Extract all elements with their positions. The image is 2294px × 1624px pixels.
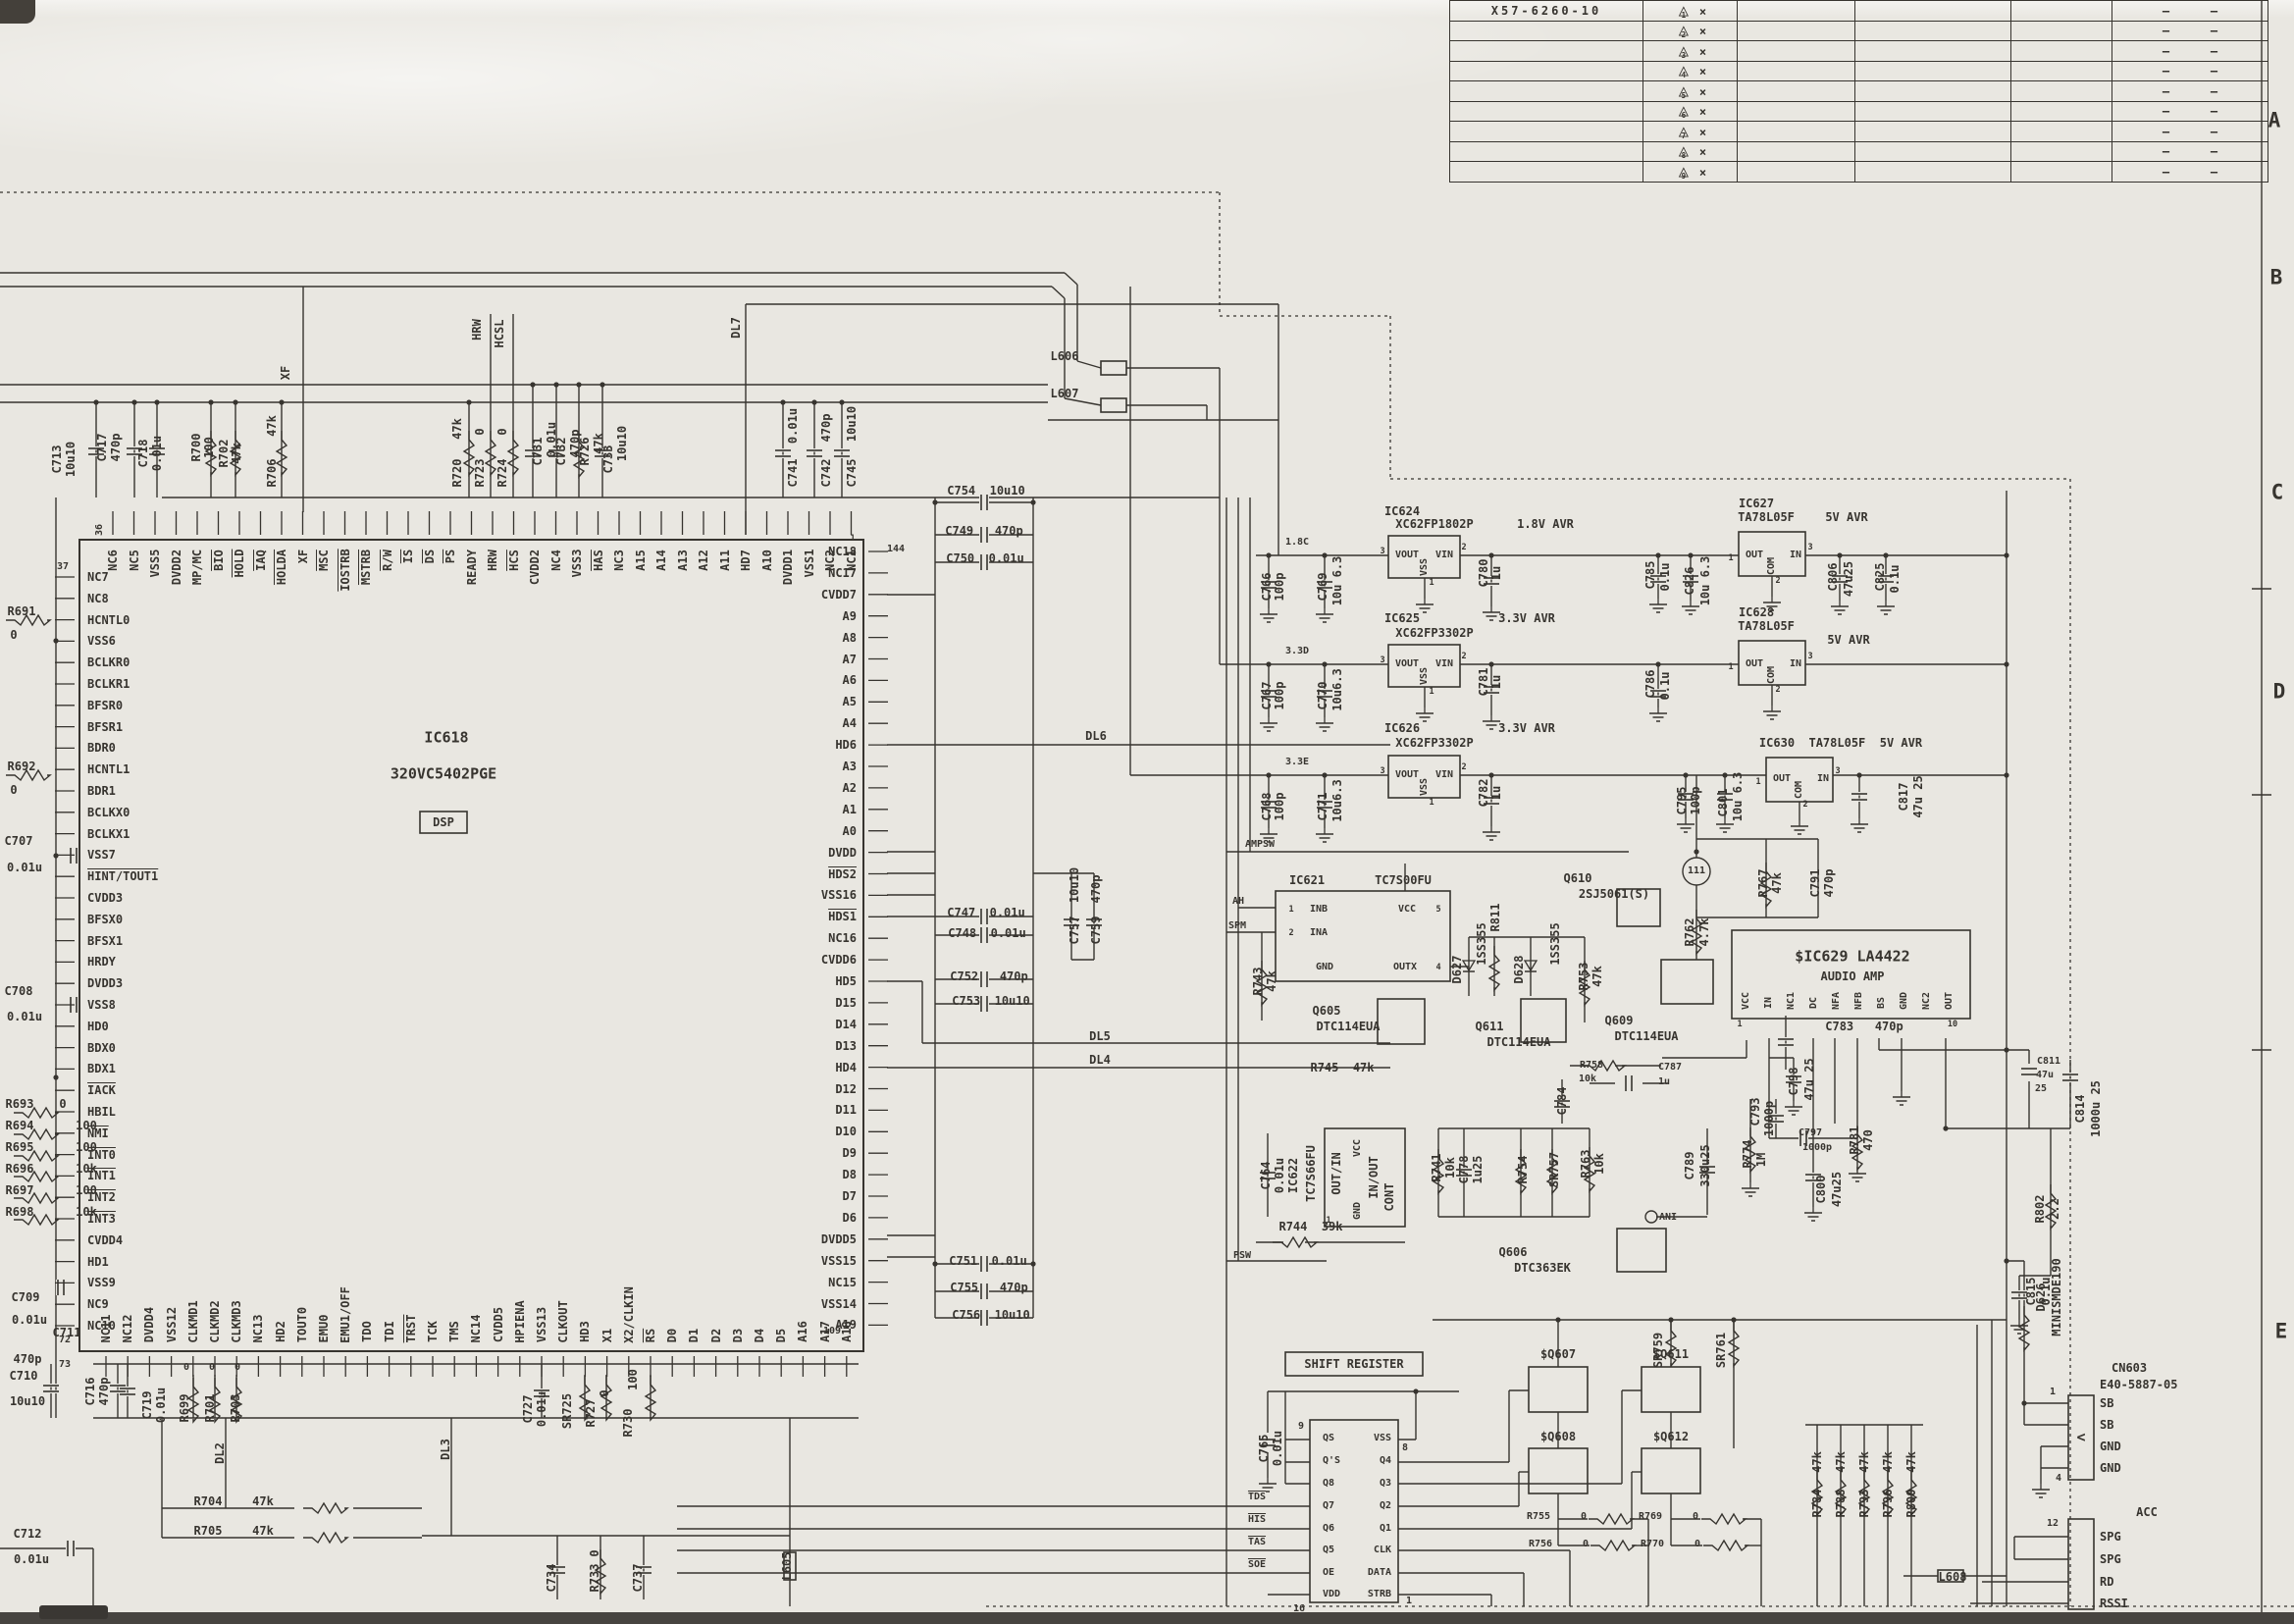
component-label: SR725 — [561, 1393, 573, 1429]
revision-empty-cell — [1450, 162, 1643, 183]
pin-label: BDR1 — [87, 785, 116, 797]
component-label: 0.01u — [1272, 1431, 1283, 1466]
pin-label: CVDD2 — [529, 550, 541, 585]
pin-label: EMU1/OFF — [339, 1286, 351, 1343]
component-label: PSW — [1233, 1251, 1251, 1261]
pin-label: XF — [297, 550, 309, 563]
component-label: 2 — [1288, 929, 1293, 938]
component-label: 47k — [1591, 966, 1603, 987]
component-label: 0.01u — [536, 1391, 547, 1427]
pin-label: A13 — [677, 550, 689, 571]
component-label: COM — [1767, 557, 1777, 575]
component-label: VOUT — [1395, 770, 1419, 780]
revision-empty-cell — [1855, 122, 2011, 142]
pin-label: A3 — [843, 760, 857, 772]
component-label: 330u25 — [1699, 1144, 1711, 1186]
component-label: IN — [1764, 997, 1774, 1009]
component-label: $Q607 — [1540, 1348, 1576, 1360]
pin-label: TDO — [361, 1322, 373, 1343]
revision-mark-cell: △3× — [1643, 41, 1738, 62]
component-label: NC2 — [1922, 992, 1932, 1010]
component-label: 1.8V AVR — [1517, 518, 1574, 530]
pin-label: R/W — [382, 550, 393, 571]
component-label: C710 — [10, 1370, 38, 1382]
component-label: R723 — [474, 459, 486, 488]
pin-label: CVDD4 — [87, 1234, 123, 1246]
component-label: DTC114EUA — [1614, 1030, 1678, 1042]
component-label: VSS — [1420, 558, 1430, 576]
component-label: 0.01u — [155, 1388, 167, 1423]
pin-label: A17 — [819, 1322, 831, 1343]
revision-dash-cell: –– — [2112, 122, 2268, 142]
pin-label: A11 — [719, 550, 731, 571]
component-label: 1u — [1658, 1077, 1670, 1087]
component-label: 100p — [1690, 787, 1701, 815]
component-label: R755 — [1527, 1512, 1550, 1522]
component-label: C769 — [1317, 573, 1329, 602]
component-label: R700 — [190, 434, 202, 462]
x-mark: × — [1699, 65, 1706, 79]
component-label: IN/OUT — [1368, 1156, 1380, 1198]
pin-label: D6 — [843, 1212, 857, 1224]
component-label: C825 — [1874, 563, 1886, 592]
component-label: Q610 — [1564, 872, 1592, 884]
component-label: C782 — [1478, 779, 1489, 808]
pin-label: HCNTL0 — [87, 614, 130, 626]
component-label: 1 — [2050, 1388, 2056, 1397]
component-label: C749 470p — [945, 525, 1022, 537]
pin-label: D0 — [666, 1329, 678, 1342]
component-label: C757 — [1069, 917, 1080, 945]
component-label: 3 — [1807, 544, 1812, 552]
component-label: XC62FP3302P — [1395, 627, 1473, 639]
component-label: 73 — [59, 1360, 71, 1370]
component-label: TA78L05F — [1738, 620, 1795, 632]
component-label: 3 — [1835, 767, 1840, 776]
warning-triangle-icon: △9 — [1674, 163, 1694, 181]
grid-letter: C — [2271, 483, 2284, 503]
component-label: 1 — [1728, 554, 1733, 563]
pin-label: MSC — [318, 550, 330, 571]
pin-label: NMI — [87, 1127, 109, 1139]
component-label: 1u — [1490, 786, 1502, 800]
component-label: 47k — [1835, 1451, 1847, 1473]
component-label: 1SS355 — [1549, 922, 1561, 965]
pin-label: NC17 — [828, 567, 857, 579]
component-label: 0 — [1693, 1512, 1698, 1522]
component-label: C770 — [1317, 682, 1329, 710]
pin-label: BFSX0 — [87, 914, 123, 925]
grid-letter: D — [2273, 682, 2286, 703]
component-label: 47u — [2036, 1071, 2054, 1080]
component-label: C798 — [1788, 1068, 1799, 1096]
pin-label: NC7 — [87, 571, 109, 583]
component-label: 470p — [820, 414, 832, 443]
component-label: R770 — [1641, 1540, 1664, 1549]
component-label: GND — [1353, 1202, 1363, 1220]
component-label: Q7 — [1323, 1501, 1334, 1511]
component-label: C712 — [14, 1528, 42, 1540]
pin-label: D10 — [835, 1126, 857, 1137]
pin-label: A9 — [843, 610, 857, 622]
component-label: C718 — [137, 440, 149, 468]
component-label: 100 — [203, 437, 215, 458]
pin-label: A5 — [843, 696, 857, 707]
pin-label: NC5 — [129, 550, 140, 571]
pin-label: TDI — [384, 1322, 395, 1343]
component-label: R762 — [1684, 918, 1695, 947]
component-label: 0 — [183, 1363, 189, 1373]
component-label: IC622 — [1287, 1158, 1299, 1193]
pin-label: HCS — [508, 550, 520, 571]
pin-label: A19 — [835, 1319, 857, 1331]
pin-label: BFSX1 — [87, 935, 123, 947]
component-label: C716 — [84, 1378, 96, 1406]
component-label: C755 470p — [950, 1282, 1027, 1293]
component-label: 47k — [1771, 872, 1783, 894]
component-label: IC621 — [1289, 874, 1325, 886]
component-label: C709 — [12, 1291, 40, 1303]
revision-empty-cell — [1738, 101, 1855, 122]
revision-empty-cell — [1450, 101, 1643, 122]
pin-label: VSS7 — [87, 849, 116, 861]
revision-row: △4×–– — [1450, 61, 2268, 81]
component-label: 1 — [1737, 1021, 1742, 1029]
component-label: R756 — [1529, 1540, 1552, 1549]
component-label: R703 — [230, 1394, 241, 1423]
component-label: 3.3E — [1285, 758, 1309, 767]
pin-label: DVDD — [828, 847, 857, 859]
component-label: OUTX — [1393, 963, 1417, 972]
component-label: AMPSW — [1245, 840, 1275, 850]
component-label: C751 0.01u — [949, 1255, 1026, 1267]
component-label: 470 — [1862, 1129, 1874, 1151]
pin-label: D8 — [843, 1169, 857, 1180]
pin-label: HD0 — [87, 1021, 109, 1032]
component-label: 111 — [1688, 866, 1705, 876]
component-label: VSS — [1420, 667, 1430, 685]
pin-label: D11 — [835, 1104, 857, 1116]
component-label: Q6 — [1323, 1524, 1334, 1534]
component-label: XC62FP1802P — [1395, 518, 1473, 530]
component-label: 144 — [887, 545, 905, 554]
component-label: XF — [280, 366, 291, 380]
component-label: C764 — [1260, 1162, 1272, 1190]
component-label: 2 — [1775, 577, 1780, 586]
component-label: 47k — [252, 1495, 274, 1507]
revision-mark-cell: △6× — [1643, 101, 1738, 122]
component-label: R758 — [1580, 1061, 1603, 1071]
component-label: 0.1u — [1889, 565, 1901, 594]
component-label: $Q608 — [1540, 1431, 1576, 1442]
pin-label: INT0 — [87, 1149, 116, 1161]
pin-label: EMU0 — [318, 1314, 330, 1342]
component-label: 47k — [1858, 1451, 1870, 1473]
revision-mark-cell: △7× — [1643, 122, 1738, 142]
component-label: C756 10u10 — [952, 1309, 1029, 1321]
component-label: R720 — [451, 459, 463, 488]
revision-empty-cell — [1450, 141, 1643, 162]
component-label: C780 — [1478, 559, 1489, 588]
component-label: C748 0.01u — [948, 927, 1025, 939]
component-label: IC618 — [424, 731, 468, 746]
component-label: 0.1u — [1659, 563, 1671, 592]
component-label: 3 — [1380, 656, 1384, 665]
component-label: C781 — [1478, 668, 1489, 697]
component-label: 5V AVR — [1825, 511, 1867, 523]
revision-empty-cell — [2011, 61, 2112, 81]
pin-label: VSS12 — [166, 1307, 178, 1342]
component-label: R694 — [6, 1120, 34, 1131]
component-label: R769 — [1639, 1512, 1662, 1522]
component-label: MINISMDE190 — [2051, 1258, 2062, 1336]
component-label: VCC — [1398, 905, 1416, 915]
component-label: C734 — [546, 1564, 557, 1593]
revision-mark-cell: △5× — [1643, 81, 1738, 102]
component-label: DL6 — [1085, 730, 1107, 742]
component-label: R695 — [6, 1141, 34, 1153]
component-label: 1000p — [1763, 1101, 1775, 1136]
revision-row: △3×–– — [1450, 41, 2268, 62]
pin-label: VSS6 — [87, 635, 116, 647]
component-label: C785 — [1644, 561, 1656, 590]
component-label: $IC629 LA4422 — [1795, 950, 1909, 965]
pin-label: DVDD1 — [782, 550, 794, 585]
component-label: D626 — [2035, 1283, 2047, 1312]
pin-label: HOLDA — [276, 550, 287, 585]
component-label: 0 — [235, 1363, 240, 1373]
component-label: 2 — [1461, 653, 1466, 661]
component-label: C745 — [846, 459, 858, 488]
component-label: SR759 — [1652, 1333, 1664, 1368]
pin-label: A16 — [797, 1322, 808, 1343]
pin-label: D1 — [688, 1329, 700, 1342]
component-label: XC62FP3302P — [1395, 737, 1473, 749]
component-label: 10k — [1579, 1074, 1596, 1084]
component-label: BS — [1877, 997, 1887, 1009]
pin-label: D13 — [835, 1040, 857, 1052]
component-label: 3.3V AVR — [1498, 722, 1555, 734]
component-label: IC624 — [1384, 505, 1420, 517]
revision-mark-cell: △1× — [1643, 1, 1738, 22]
component-label: R744 39k — [1278, 1221, 1342, 1232]
component-label: VSS — [1374, 1434, 1391, 1443]
component-label: 1u25 — [1472, 1156, 1484, 1184]
component-label: 1.8C — [1285, 538, 1309, 548]
component-label: 1 — [1406, 1597, 1412, 1606]
component-label: 10u10 — [616, 426, 628, 461]
component-label: D627 — [1451, 956, 1463, 984]
revision-dash-cell: –– — [2112, 1, 2268, 22]
component-label: 1000u 25 — [2090, 1080, 2102, 1137]
pin-label: D5 — [775, 1329, 787, 1342]
pin-label: VSS5 — [149, 550, 161, 578]
component-label: R802 — [2034, 1195, 2046, 1224]
component-label: Q'S — [1323, 1456, 1340, 1466]
component-label: 1000p — [1802, 1143, 1832, 1153]
component-label: COM — [1795, 781, 1804, 799]
revision-empty-cell — [1855, 81, 2011, 102]
component-label: DL4 — [1089, 1054, 1111, 1066]
component-label: C778 — [1458, 1156, 1470, 1184]
component-label: 8 — [1402, 1443, 1408, 1453]
component-label: SB — [2100, 1397, 2113, 1409]
pin-label: A2 — [843, 782, 857, 794]
component-label: 470p — [1090, 875, 1102, 904]
x-mark: × — [1699, 45, 1706, 59]
component-label: C717 — [96, 434, 108, 462]
component-label: 100p — [1274, 573, 1285, 602]
pin-label: TMS — [448, 1322, 460, 1343]
pin-label: VSS13 — [536, 1307, 547, 1342]
pin-label: A1 — [843, 804, 857, 815]
component-label: 47k — [1882, 1451, 1894, 1473]
component-label: C817 — [1898, 783, 1909, 812]
warning-triangle-icon: △1 — [1674, 2, 1694, 20]
pin-label: D9 — [843, 1147, 857, 1159]
revision-empty-cell — [1855, 101, 2011, 122]
revision-mark-cell: △4× — [1643, 61, 1738, 81]
component-label: 2SJ5061(S) — [1579, 888, 1649, 900]
revision-row: △8×–– — [1450, 141, 2268, 162]
component-label: 47u 25 — [1912, 775, 1924, 817]
component-label: 2 — [1461, 544, 1466, 552]
component-label: R767 — [1757, 869, 1769, 898]
component-label: 10u10 — [1069, 867, 1080, 903]
pin-label: HBIL — [87, 1106, 116, 1118]
component-label: DL2 — [214, 1442, 226, 1464]
pin-label: CLKMD1 — [187, 1300, 199, 1342]
component-label: D628 — [1513, 956, 1525, 984]
component-label: IN — [1790, 550, 1801, 560]
component-label: HCSL — [494, 320, 505, 348]
component-label: 0.01u — [151, 436, 163, 471]
component-label: 10u6.3 — [1331, 668, 1343, 710]
component-label: Q611 — [1476, 1021, 1504, 1032]
component-label: VIN — [1435, 770, 1453, 780]
component-label: R706 — [266, 459, 278, 488]
component-label: ANI — [1659, 1213, 1677, 1223]
component-label: 1 — [850, 535, 855, 544]
component-label: 100 — [627, 1369, 639, 1390]
component-label: 470p — [14, 1353, 42, 1365]
component-label: R702 — [218, 440, 230, 468]
component-label: 47k — [1905, 1451, 1917, 1473]
component-label: R811 — [1489, 904, 1501, 932]
component-label: 10u6.3 — [1331, 779, 1343, 821]
component-label: SPM — [1228, 921, 1246, 931]
component-label: Q8 — [1323, 1479, 1334, 1489]
component-label: 3.3V AVR — [1498, 612, 1555, 624]
pin-label: HRDY — [87, 956, 116, 968]
pin-label: HD3 — [579, 1322, 591, 1343]
component-label: IN — [1790, 659, 1801, 669]
pin-label: BDX1 — [87, 1063, 116, 1074]
component-label: R698 — [6, 1206, 34, 1218]
revision-dash-cell: –– — [2112, 81, 2268, 102]
component-label: GND — [2100, 1462, 2121, 1474]
revision-row: △7×–– — [1450, 122, 2268, 142]
component-label: R800 — [1905, 1490, 1917, 1518]
component-label: C750 0.01u — [946, 552, 1023, 564]
revision-empty-cell — [1855, 1, 2011, 22]
pin-label: VSS9 — [87, 1277, 116, 1288]
component-label: 470p — [98, 1378, 110, 1406]
component-label: C789 — [1684, 1152, 1695, 1180]
revision-dash-cell: –– — [2112, 41, 2268, 62]
revision-empty-cell — [1450, 41, 1643, 62]
pin-label: HD6 — [835, 739, 857, 751]
component-label: HRW — [471, 319, 483, 341]
component-label: 0 — [1581, 1512, 1587, 1522]
component-label: R693 — [6, 1098, 34, 1110]
component-label: Q2 — [1380, 1501, 1391, 1511]
component-label: 12 — [2047, 1519, 2059, 1529]
component-label: R788 — [1835, 1490, 1847, 1518]
component-label: RSSI — [2100, 1598, 2128, 1609]
revision-empty-cell — [1450, 122, 1643, 142]
component-label: R763 — [1580, 1150, 1591, 1179]
component-label: C707 — [5, 835, 33, 847]
component-label: OUT — [1746, 659, 1763, 669]
pin-label: READY — [466, 550, 478, 585]
component-label: Q605 — [1313, 1005, 1341, 1017]
pin-label: BCLKR1 — [87, 678, 130, 690]
component-label: TC7S00FU — [1375, 874, 1432, 886]
component-label: 47k — [451, 418, 463, 440]
component-label: 0 — [589, 1549, 600, 1556]
pin-label: BFSR1 — [87, 721, 123, 733]
pin-label: VSS16 — [821, 889, 857, 901]
pin-label: NC6 — [107, 550, 119, 571]
warning-triangle-icon: △7 — [1674, 123, 1694, 140]
component-label: C784 — [1556, 1087, 1568, 1116]
component-label: 2 — [1802, 801, 1807, 810]
component-label: R753 — [1578, 963, 1590, 991]
component-label: R743 — [1252, 968, 1264, 996]
pin-label: NC14 — [470, 1314, 482, 1342]
pin-label: CLKMD2 — [209, 1300, 221, 1342]
component-label: STRB — [1368, 1590, 1391, 1599]
component-label: 100p — [1274, 793, 1285, 821]
revision-empty-cell — [1738, 81, 1855, 102]
pin-label: NC16 — [828, 932, 857, 944]
component-label: 1 — [1429, 579, 1434, 588]
x-mark: × — [1699, 85, 1706, 99]
component-label: AUDIO AMP — [1820, 970, 1884, 982]
component-label: Q5 — [1323, 1545, 1334, 1555]
component-label: C708 — [5, 985, 33, 997]
pin-label: HCNTL1 — [87, 763, 130, 775]
revision-empty-cell — [2011, 41, 2112, 62]
component-label: 47k — [1266, 970, 1277, 992]
component-label: C801 — [1717, 789, 1729, 817]
pin-label: HPIENA — [514, 1300, 526, 1342]
revision-empty-cell — [1738, 141, 1855, 162]
pin-label: A0 — [843, 825, 857, 837]
component-label: R781 — [1849, 1126, 1860, 1155]
component-label: 4 — [2056, 1474, 2061, 1484]
component-label: VIN — [1435, 550, 1453, 560]
component-label: 0.01u — [12, 1314, 47, 1326]
component-label: R701 — [204, 1394, 216, 1423]
pin-label: CVDD5 — [493, 1307, 504, 1342]
revision-empty-cell — [2011, 141, 2112, 162]
component-label: GND — [1900, 992, 1909, 1010]
revision-empty-cell — [1855, 61, 2011, 81]
pin-label: CLKOUT — [557, 1300, 569, 1342]
component-label: DL5 — [1089, 1030, 1111, 1042]
